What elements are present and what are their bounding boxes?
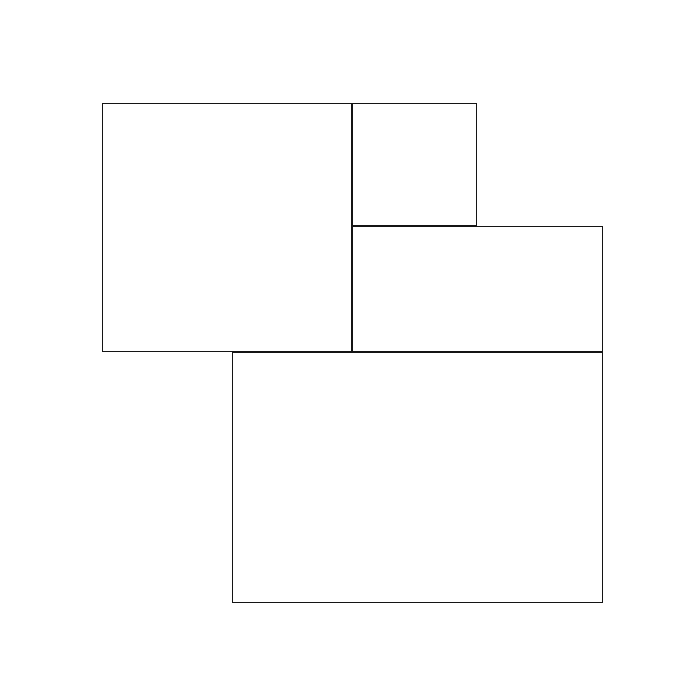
rectangle-left-square: [102, 103, 352, 352]
rectangle-bottom-rectangle: [232, 352, 603, 603]
drawing-canvas: [0, 0, 700, 700]
rectangle-top-small-square: [352, 103, 477, 226]
rectangle-right-rectangle: [352, 226, 603, 352]
